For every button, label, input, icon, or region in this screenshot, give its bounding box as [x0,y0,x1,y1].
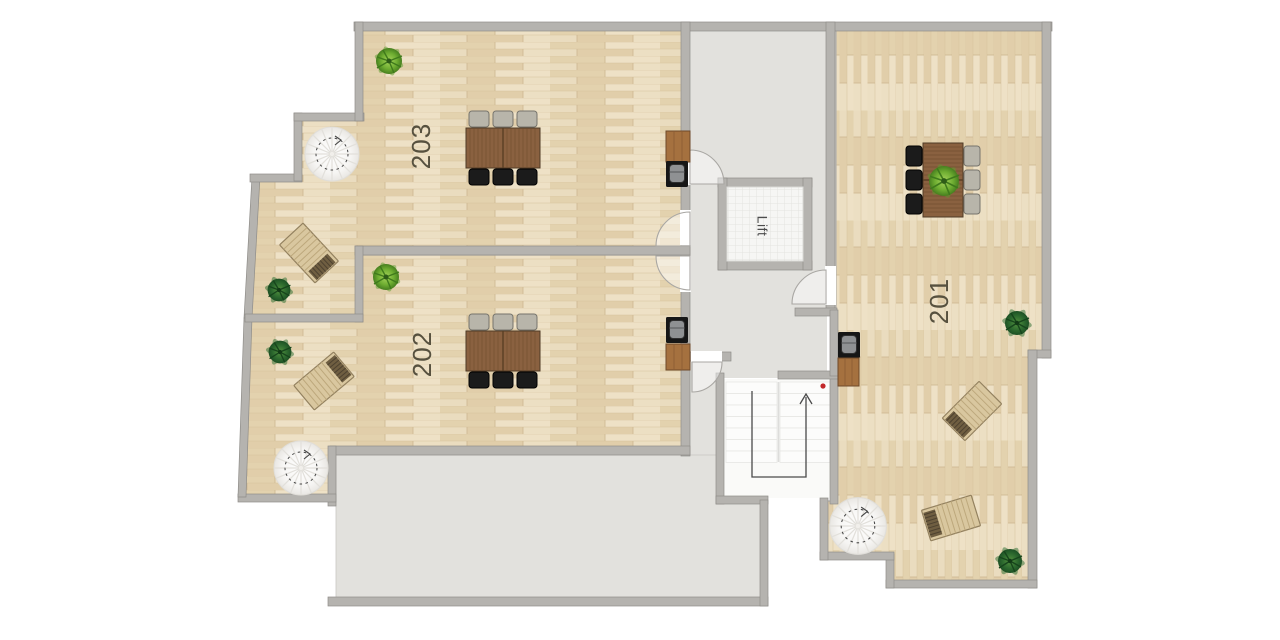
floor-plan-page: Lift [0,0,1280,640]
wall-stairwell-right [830,373,838,504]
stove-201 [838,332,860,358]
wall-201-left-lower [830,310,838,376]
wall-203-terrace-top [294,113,364,121]
lift-wall-top [718,178,812,187]
lift-label: Lift [754,216,770,237]
wall-roof-terrace-right [760,500,768,606]
spiral-staircase-202 [274,441,328,495]
floor-plan-canvas: Lift [0,0,1280,640]
wall-203-terrace-vert [294,113,302,181]
wall-roof-terrace-top [330,446,690,455]
wall-201-bottom [886,580,1037,588]
wall-202-left-segment [355,246,363,322]
wall-202-bottom-left [238,494,336,502]
wall-201-terrace-left [820,498,828,560]
wall-201-right-upper [1042,22,1051,358]
wall-203-left [355,22,363,121]
label-apartment-203: 203 [406,123,436,169]
roof-terrace-floor [336,455,761,598]
kitchen-201 [838,332,860,386]
wall-top [354,22,1052,31]
dining-table-202 [466,314,540,388]
lift-wall-bottom [718,261,812,270]
kitchen-203 [666,131,690,187]
wall-203-202-divider [355,246,690,255]
wall-201-right-lower [1028,350,1037,588]
spiral-staircase-201 [830,498,887,555]
label-apartment-201: 201 [924,278,954,324]
kitchen-202 [666,317,690,370]
lift-wall-right [803,178,812,270]
wall-stairwell-left [716,373,724,504]
door-gap-201 [825,266,836,305]
lift-room: Lift [718,178,812,270]
wall-roof-terrace-bottom [328,597,768,606]
stove-203 [666,161,688,187]
stairwell [722,379,832,498]
spiral-staircase-203 [305,127,359,181]
stove-202 [666,317,688,343]
door-gap-corridor [691,351,722,362]
wall-stairwell-top [778,371,838,379]
label-apartment-202: 202 [407,331,437,377]
stair-red-marker [820,383,825,388]
lift-wall-left [718,178,727,270]
dining-table-203 [466,111,540,185]
wall-terrace-divider [245,314,363,322]
